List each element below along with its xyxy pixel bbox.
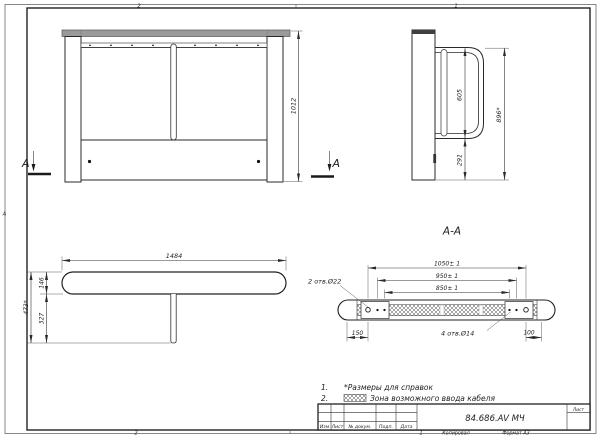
zone-bottom-right: 1 [419,430,422,436]
dim-950-label: 950± 1 [436,273,458,280]
section-letter-right: A [332,157,341,170]
zone-top-right: 1 [454,4,457,10]
col-podp: Подп. [379,424,393,430]
doc-number: 84.686.AV МЧ [465,414,525,424]
drawing-canvas: 2 1 2 1 A Копировал Формат А3 101 [0,0,600,438]
notes: 1. *Размеры для справок 2. Зона возможно… [321,383,495,403]
dim-850: 850± 1 [385,285,510,299]
dim-146-label: 146 [39,277,46,289]
zone-bottom-left: 2 [134,430,137,436]
dim-1012: 1012 [284,31,303,182]
dim-1484-label: 1484 [166,252,183,260]
holes-14-label: 4 отв.Ø14 [441,330,474,338]
dim-605-label: 605 [457,89,464,101]
hatch-break-1 [440,305,444,315]
section-letter-left: A [21,157,30,170]
dim-291-label: 291 [457,154,464,166]
hole-14 [508,309,510,311]
panel-edge [441,50,447,137]
dim-896-label: 896* [496,107,503,122]
panel-hole-left [88,160,91,163]
note-2-text: Зона возможного ввода кабеля [370,394,495,403]
section-marker-left: A [21,151,51,174]
dim-605: 605 [457,48,466,138]
col-data: Дата [400,424,413,430]
right-post [267,37,283,183]
rail-capsule [62,272,286,294]
dim-473-label: 473* [23,300,30,314]
dim-146: 146 [39,272,47,294]
dim-100: 100 [523,322,541,342]
front-view: 1012 A A [21,30,340,182]
post-bracket [433,154,436,163]
zone-left: A [2,212,7,218]
panel-hole-right [257,160,260,163]
hole-14 [376,309,378,311]
holes-22-label: 2 отв.Ø22 [308,278,341,286]
dim-100-label: 100 [523,331,534,337]
dim-291: 291 [436,139,509,181]
panel-stem [171,294,176,343]
copied-label: Копировал [442,431,469,437]
inner-frame [27,8,590,430]
format-label: Формат А3 [502,431,529,437]
dim-1012-label: 1012 [290,98,298,115]
section-marker-right: A [311,151,340,177]
dim-850-label: 850± 1 [436,285,458,292]
dim-150-label: 150 [352,330,364,337]
dim-327-label: 327 [39,313,46,325]
outer-border [5,5,596,434]
top-rail [62,30,290,37]
dim-327: 327 [39,294,47,343]
dim-896: 896* [485,48,509,180]
note-1-text: *Размеры для справок [344,383,433,392]
hole-22-left [366,308,371,313]
hatch-legend-swatch [344,395,366,402]
side-view: 605 291 896* [412,30,509,180]
top-view: 1484 146 473* 327 [23,252,286,343]
side-post [412,30,435,180]
sheet-label: Лист [572,407,585,413]
col-doc: № докум. [348,424,372,430]
note-1-number: 1. [321,383,328,392]
dim-1484: 1484 [62,252,286,271]
bottom-panel [81,140,267,180]
sheet-frame: 2 1 2 1 A Копировал Формат А3 [2,4,596,437]
hole-22-right [524,308,529,313]
center-divider [171,44,177,140]
side-post-cap [412,30,435,34]
section-view: A-A 1050± 1 950± 1 [308,226,555,342]
note-2-number: 2. [321,394,328,403]
hole-14 [383,309,385,311]
dim-1050-label: 1050± 1 [434,261,460,268]
title-block: Изм Лист № докум. Подп. Дата 84.686.AV М… [318,404,590,430]
hatch-break-2 [479,305,483,315]
zone-top-left: 2 [137,4,140,10]
hole-14 [515,309,517,311]
col-list: Лист [331,424,344,430]
left-post [65,37,81,183]
col-izm: Изм [320,424,330,430]
drawing-sheet: 2 1 2 1 A Копировал Формат А3 101 [0,0,600,438]
section-title: A-A [442,226,461,238]
dim-150: 150 [347,322,368,342]
